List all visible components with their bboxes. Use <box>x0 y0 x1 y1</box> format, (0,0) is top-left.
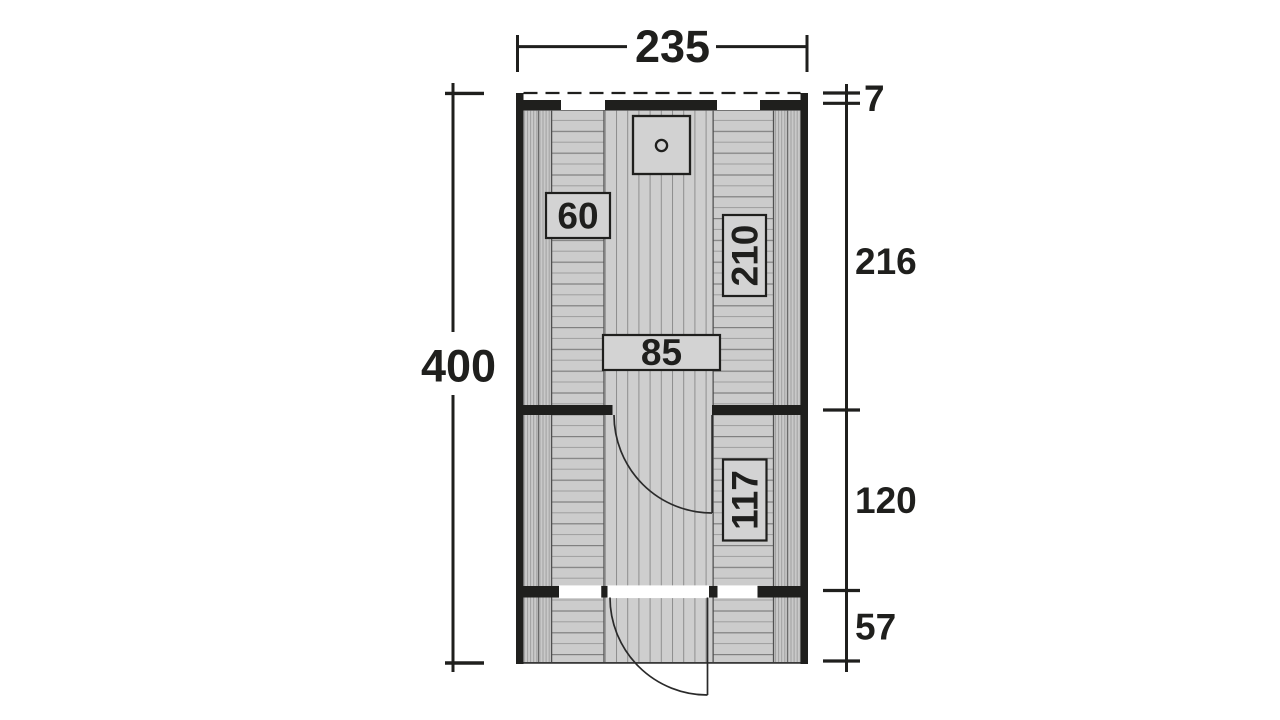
svg-text:7: 7 <box>864 78 885 119</box>
svg-text:210: 210 <box>724 225 765 287</box>
svg-text:400: 400 <box>421 340 496 391</box>
svg-text:235: 235 <box>635 21 710 72</box>
svg-text:216: 216 <box>855 241 917 282</box>
svg-text:120: 120 <box>855 480 917 521</box>
svg-text:57: 57 <box>855 607 896 648</box>
svg-text:60: 60 <box>557 195 598 236</box>
svg-text:117: 117 <box>725 470 766 530</box>
svg-text:85: 85 <box>641 332 682 373</box>
